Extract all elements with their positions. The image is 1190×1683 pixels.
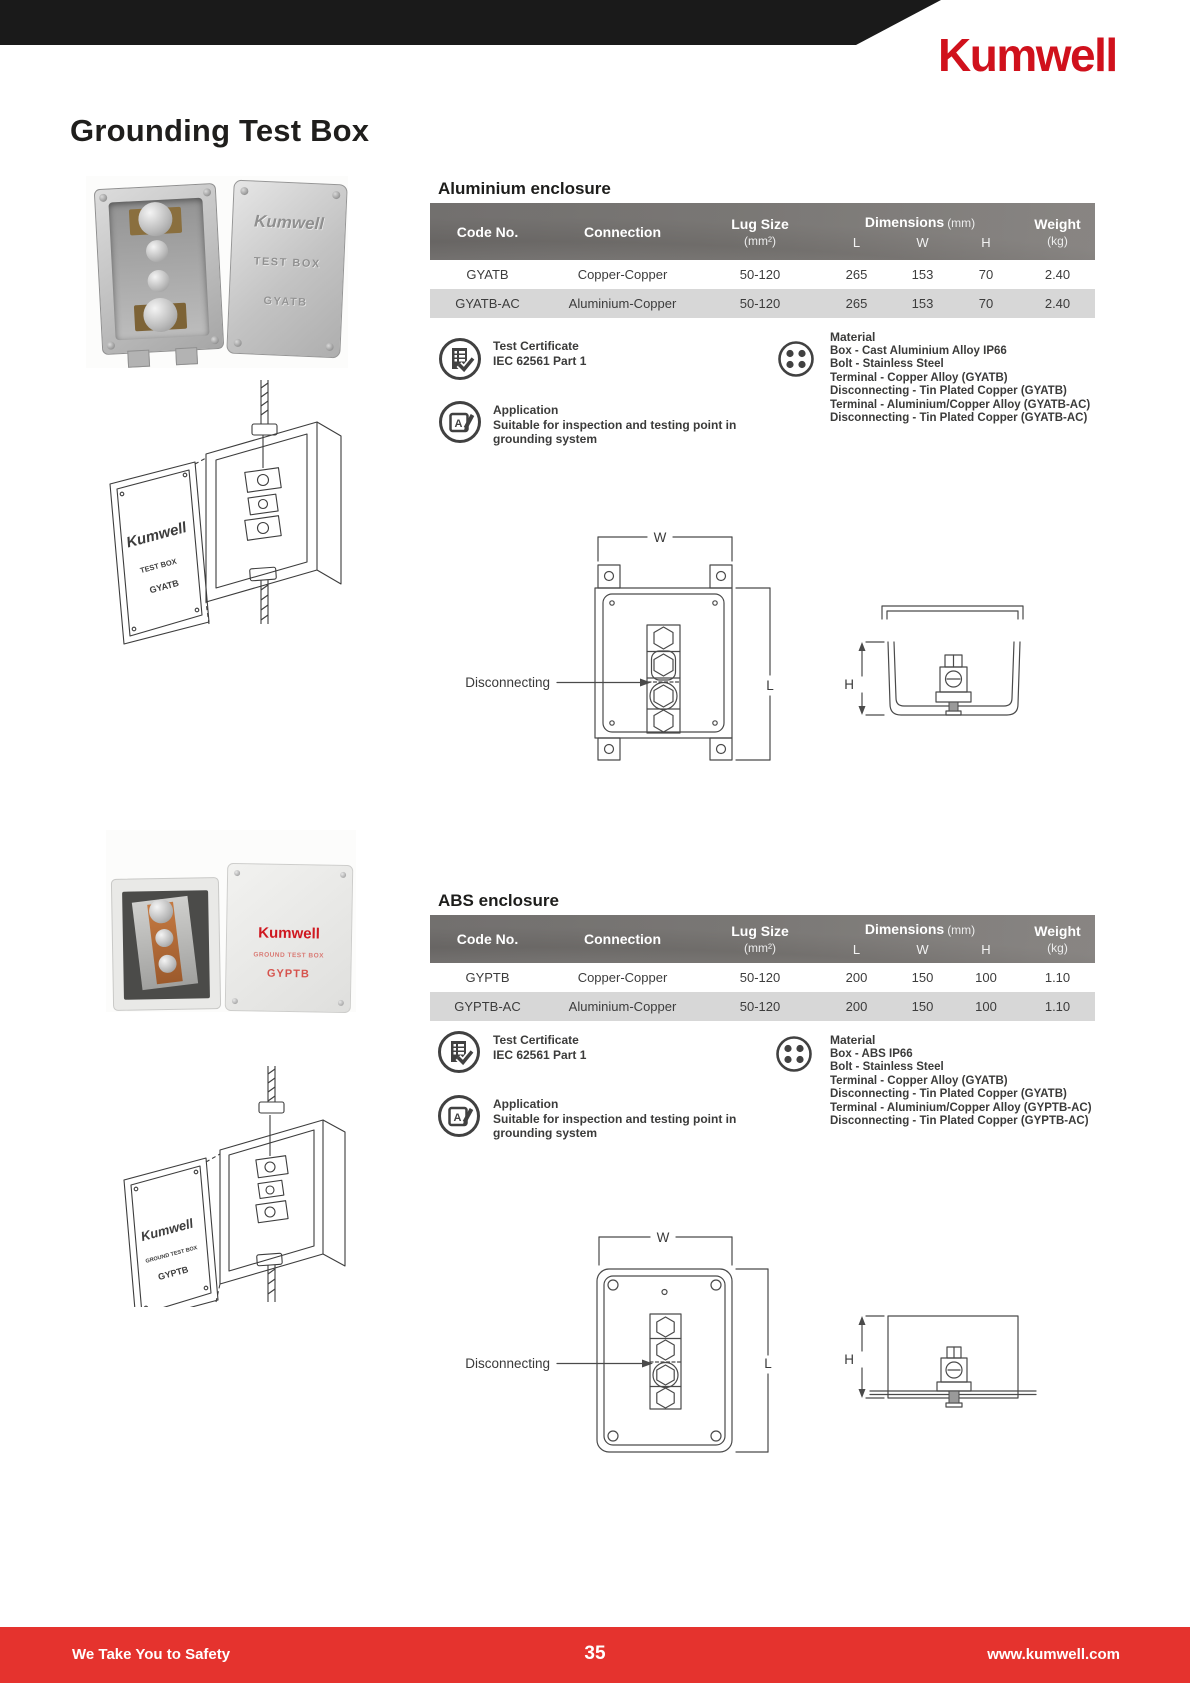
col-header-dimensions: Dimensions(mm) L W H xyxy=(820,915,1020,963)
footer-bar: We Take You to Safety 35 www.kumwell.com xyxy=(0,1627,1190,1683)
aluminium-exploded-drawing: Kumwell TEST BOX GYATB xyxy=(98,372,353,657)
dim-label-h: H xyxy=(844,1352,854,1367)
mounting-tab xyxy=(175,347,198,365)
screw-boss xyxy=(99,194,107,202)
screw xyxy=(234,870,240,876)
drawing-lid-line: GROUND TEST BOX xyxy=(145,1245,199,1265)
col-header-code: Code No. xyxy=(430,203,545,260)
application-text: Application Suitable for inspection and … xyxy=(493,403,748,447)
box-cavity xyxy=(108,198,209,341)
application-icon: A xyxy=(437,1094,481,1138)
test-certificate-icon xyxy=(437,1030,481,1074)
drawing-lid-code: GYPTB xyxy=(157,1264,190,1282)
test-certificate-icon xyxy=(438,337,482,381)
abs-lid-photo: Kumwell GROUND TEST BOX GYPTB xyxy=(225,863,354,1013)
screw xyxy=(325,343,333,351)
aluminium-lid-photo: Kumwell TEST BOX GYATB xyxy=(226,180,347,359)
abs-spec-table: Code No. Connection Lug Size (mm²) Dimen… xyxy=(430,915,1095,1021)
abs-open-box-photo xyxy=(111,877,221,1011)
dim-label-l: L xyxy=(764,1356,772,1371)
screw-boss xyxy=(107,341,115,349)
screw-boss xyxy=(211,336,219,344)
screw xyxy=(232,998,238,1004)
col-header-H: H xyxy=(952,942,1020,957)
kumwell-logo: Kumwell xyxy=(938,28,1168,82)
dim-label-l: L xyxy=(766,678,774,693)
disconnecting-label: Disconnecting xyxy=(465,675,550,690)
material-icon xyxy=(777,340,815,378)
table-row: GYPTBCopper-Copper 50-120200 150100 1.10 xyxy=(430,963,1095,992)
box-interior xyxy=(122,890,210,999)
section-heading-aluminium: Aluminium enclosure xyxy=(438,179,611,199)
material-icon xyxy=(775,1035,813,1073)
lid-brand-text: Kumwell xyxy=(233,211,346,236)
col-header-code: Code No. xyxy=(430,915,545,963)
section-heading-abs: ABS enclosure xyxy=(438,891,559,911)
screw xyxy=(234,339,242,347)
col-header-L: L xyxy=(820,235,893,250)
disconnecting-label: Disconnecting xyxy=(465,1356,550,1371)
table-row: GYATBCopper-Copper 50-120265 15370 2.40 xyxy=(430,260,1095,289)
catalog-page: Kumwell Grounding Test Box Kumwe xyxy=(0,0,1190,1683)
table-header-row: Code No. Connection Lug Size (mm²) Dimen… xyxy=(430,915,1095,963)
table-row: GYATB-ACAluminium-Copper 50-120265 15370… xyxy=(430,289,1095,318)
aluminium-dimension-drawing: W L H Disconnecting xyxy=(420,485,1080,785)
abs-dimension-drawing: W L H Disconnecting xyxy=(420,1215,1080,1465)
col-header-W: W xyxy=(893,235,952,250)
mounting-tab xyxy=(127,350,150,368)
aluminium-spec-table: Code No. Connection Lug Size (mm²) Dimen… xyxy=(430,203,1095,318)
screw xyxy=(340,872,346,878)
svg-text:A: A xyxy=(454,1112,462,1124)
lid-code-text: GYPTB xyxy=(226,967,350,981)
footer-website: www.kumwell.com xyxy=(987,1646,1120,1663)
abs-exploded-drawing: Kumwell GROUND TEST BOX GYPTB xyxy=(118,1062,348,1307)
application-icon: A xyxy=(438,400,482,444)
test-certificate-text: Test Certificate IEC 62561 Part 1 xyxy=(493,1033,586,1062)
col-header-connection: Connection xyxy=(545,915,700,963)
lid-brand-text: Kumwell xyxy=(227,924,351,943)
col-header-dimensions: Dimensions(mm) L W H xyxy=(820,203,1020,260)
aluminium-open-box-photo xyxy=(94,183,225,355)
col-header-lug-size: Lug Size (mm²) xyxy=(700,203,820,260)
screw xyxy=(240,187,248,195)
lid-line-text: TEST BOX xyxy=(231,255,343,272)
drawing-lid-brand: Kumwell xyxy=(124,519,189,552)
col-header-weight: Weight (kg) xyxy=(1020,203,1095,260)
top-black-bar xyxy=(0,0,941,45)
col-header-H: H xyxy=(952,235,1020,250)
material-text: Material Box - ABS IP66 Bolt - Stainless… xyxy=(830,1034,1092,1129)
terminal-disc xyxy=(147,269,170,292)
lid-line-text: GROUND TEST BOX xyxy=(227,951,351,960)
table-row: GYPTB-ACAluminium-Copper 50-120200 15010… xyxy=(430,992,1095,1021)
lid-code-text: GYATB xyxy=(229,294,341,311)
svg-text:A: A xyxy=(455,418,463,430)
table-header-row: Code No. Connection Lug Size (mm²) Dimen… xyxy=(430,203,1095,260)
col-header-L: L xyxy=(820,942,893,957)
terminal-disc xyxy=(145,240,168,263)
mounting-plate xyxy=(132,896,198,990)
dim-label-w: W xyxy=(654,530,667,545)
screw-boss xyxy=(203,188,211,196)
drawing-lid-code: GYATB xyxy=(148,578,180,596)
abs-product-photo: Kumwell GROUND TEST BOX GYPTB xyxy=(106,830,356,1012)
col-header-W: W xyxy=(893,942,952,957)
dim-label-h: H xyxy=(844,677,854,692)
dim-label-w: W xyxy=(657,1230,670,1245)
screw xyxy=(338,1000,344,1006)
test-certificate-text: Test Certificate IEC 62561 Part 1 xyxy=(493,339,586,368)
col-header-connection: Connection xyxy=(545,203,700,260)
page-title: Grounding Test Box xyxy=(70,113,369,149)
drawing-lid-line: TEST BOX xyxy=(139,557,178,575)
application-text: Application Suitable for inspection and … xyxy=(493,1097,748,1141)
col-header-lug-size: Lug Size (mm²) xyxy=(700,915,820,963)
material-text: Material Box - Cast Aluminium Alloy IP66… xyxy=(830,331,1090,426)
aluminium-product-photo: Kumwell TEST BOX GYATB xyxy=(86,176,348,368)
drawing-lid-brand: Kumwell xyxy=(139,1216,195,1244)
col-header-weight: Weight (kg) xyxy=(1020,915,1095,963)
screw xyxy=(332,191,340,199)
